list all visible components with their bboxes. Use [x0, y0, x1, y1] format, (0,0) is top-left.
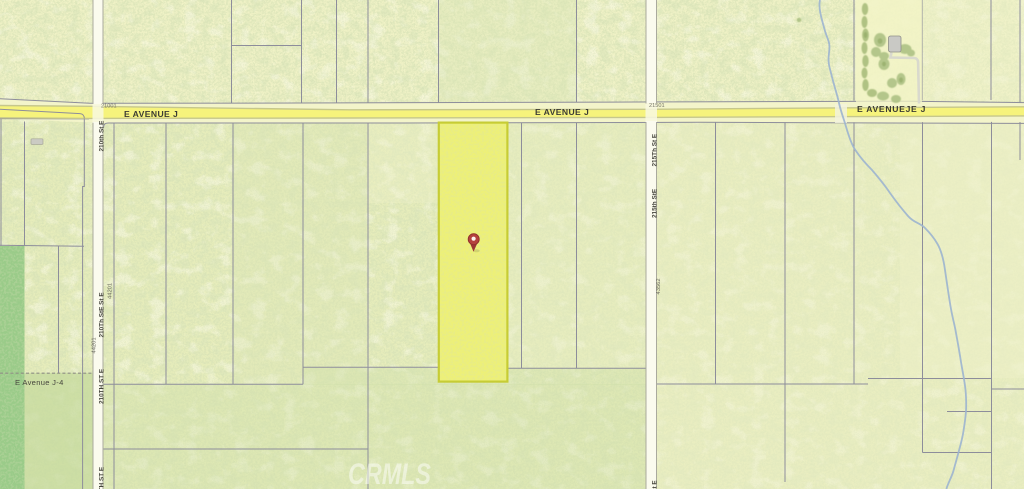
svg-text:21501: 21501 [649, 103, 665, 109]
svg-text:21001: 21001 [101, 104, 117, 110]
svg-text:210Th StE St E: 210Th StE St E [99, 292, 106, 338]
svg-text:215Th St E: 215Th St E [652, 133, 659, 166]
svg-text:210TH ST E: 210TH ST E [99, 466, 106, 489]
svg-text:43562: 43562 [656, 278, 662, 294]
svg-text:E Avenue J-4: E Avenue J-4 [15, 378, 64, 387]
svg-text:210th St E: 210th St E [99, 120, 106, 152]
svg-text:44201: 44201 [92, 337, 98, 353]
svg-text:210TH ST E: 210TH ST E [99, 368, 106, 404]
svg-text:CRMLS: CRMLS [348, 458, 431, 489]
svg-text:215th StE: 215th StE [652, 188, 659, 218]
svg-text:E AVENUE J: E AVENUE J [124, 109, 178, 119]
svg-text:E AVENUEJE J: E AVENUEJE J [857, 104, 926, 114]
svg-text:E AVENUE J: E AVENUE J [535, 107, 589, 117]
svg-text:215Th St E: 215Th St E [652, 480, 659, 489]
svg-text:44201: 44201 [108, 283, 114, 299]
